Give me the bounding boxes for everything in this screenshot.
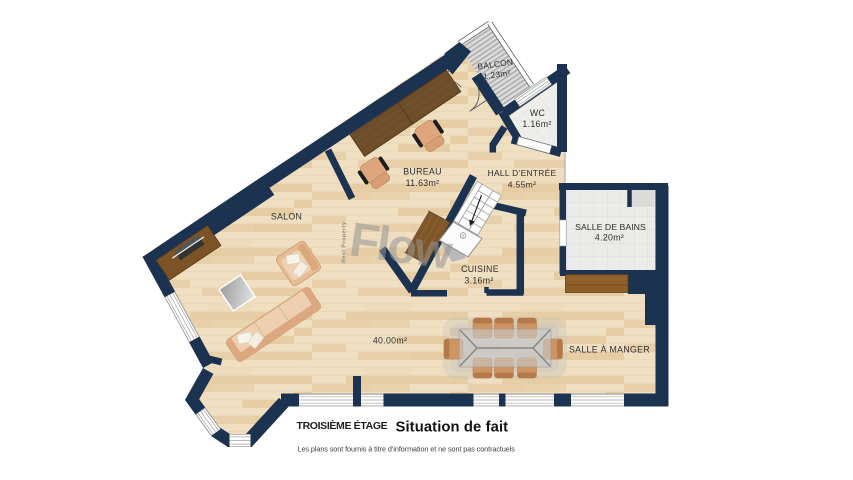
svg-text:4.20m²: 4.20m² (595, 233, 624, 243)
svg-text:HALL D’ENTRÉE: HALL D’ENTRÉE (488, 168, 557, 178)
svg-text:SALLE DE BAINS: SALLE DE BAINS (575, 222, 646, 232)
svg-text:Situation de fait: Situation de fait (396, 420, 509, 436)
svg-text:SALON: SALON (271, 212, 302, 222)
svg-text:11.63m²: 11.63m² (406, 178, 440, 188)
svg-text:Les plans sont fournis à titre: Les plans sont fournis à titre d’informa… (298, 445, 516, 454)
svg-text:1.16m²: 1.16m² (522, 119, 551, 129)
svg-text:SALLE À MANGER: SALLE À MANGER (569, 345, 650, 355)
svg-text:R: R (461, 234, 464, 239)
svg-text:3.16m²: 3.16m² (464, 276, 493, 286)
svg-text:BUREAU: BUREAU (403, 167, 441, 177)
svg-text:TROISIÈME ÉTAGE: TROISIÈME ÉTAGE (297, 419, 388, 432)
svg-text:WC: WC (530, 108, 546, 118)
svg-text:40.00m²: 40.00m² (373, 335, 407, 345)
svg-text:4.55m²: 4.55m² (508, 180, 537, 190)
svg-text:CUISINE: CUISINE (461, 264, 499, 274)
svg-text:Real Property: Real Property (342, 221, 348, 263)
